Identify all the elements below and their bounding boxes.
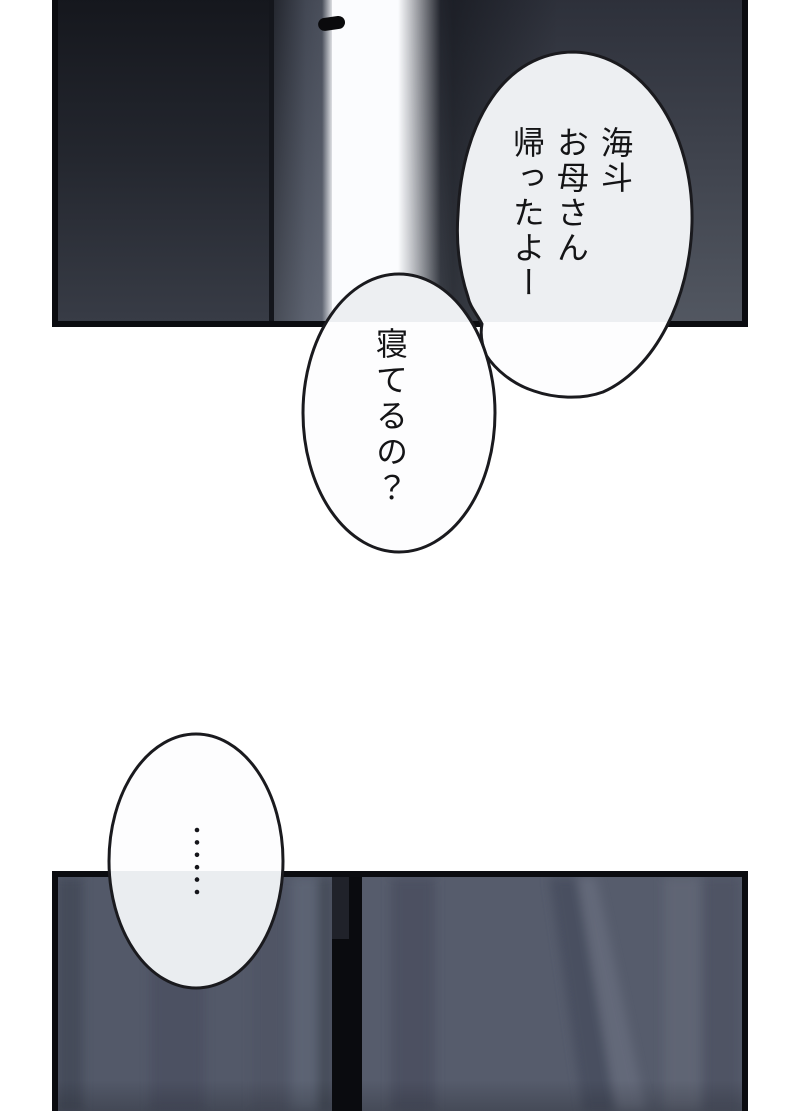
door-slab (58, 0, 269, 323)
page-artwork (0, 0, 800, 1111)
door-edge-line (269, 0, 274, 323)
bubble2-dialogue: 寝てるの？ (368, 327, 412, 522)
curtain-bottom-shade (58, 1080, 743, 1111)
bubble1-line-2: お母さん (549, 126, 593, 336)
bubble1-line-1: 海斗 (593, 126, 637, 336)
bubble1-dialogue: 海斗 お母さん 帰ったよー (505, 126, 637, 336)
bubble1-line-3: 帰ったよー (505, 126, 549, 336)
comic-page: 海斗 お母さん 帰ったよー 寝てるの？ (0, 0, 800, 1111)
curtain-gap (332, 877, 362, 1111)
